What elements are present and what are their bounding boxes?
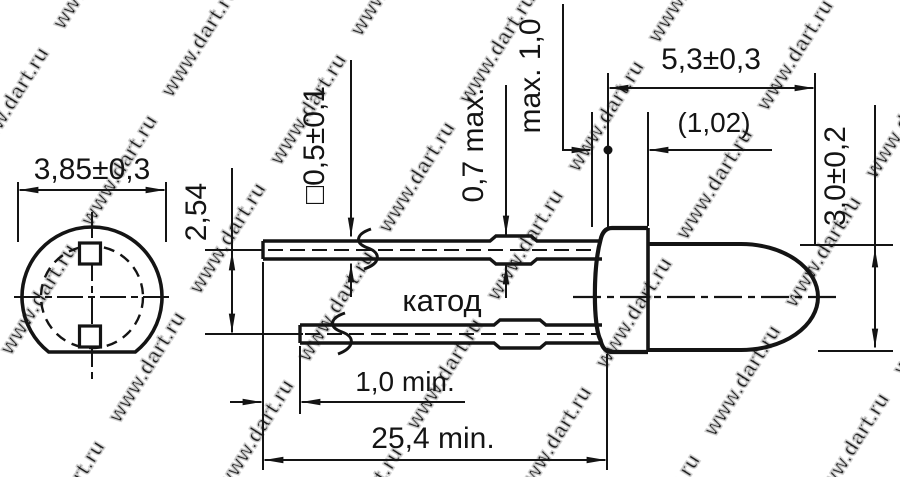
drawing-canvas: www.dart.ru 3,85±0,3 [0, 0, 900, 477]
meniscus-max-label: max. 1,0 [514, 18, 547, 133]
flange-diameter-label: 3,85±0,3 [34, 153, 151, 186]
lead-min-offset-label: 1,0 min. [355, 366, 455, 397]
lead-pitch-label: 2,54 [180, 183, 213, 241]
body-length-label: 5,3±0,3 [661, 43, 761, 76]
dome-diameter-label: 3,0±0,2 [819, 126, 852, 226]
standoff-max-label: 0,7 max. [457, 87, 490, 202]
led-dimension-drawing: www.dart.ru 3,85±0,3 [0, 0, 900, 477]
watermark-layer [0, 0, 900, 477]
lead-cross-section-label: □0,5±0,1 [298, 86, 331, 204]
cathode-lead-section [80, 326, 101, 347]
cathode-label: катод [402, 283, 481, 318]
flange-thickness-label: (1,02) [677, 107, 750, 138]
lead-min-length-label: 25,4 min. [371, 422, 494, 455]
anode-lead-section [80, 243, 101, 264]
